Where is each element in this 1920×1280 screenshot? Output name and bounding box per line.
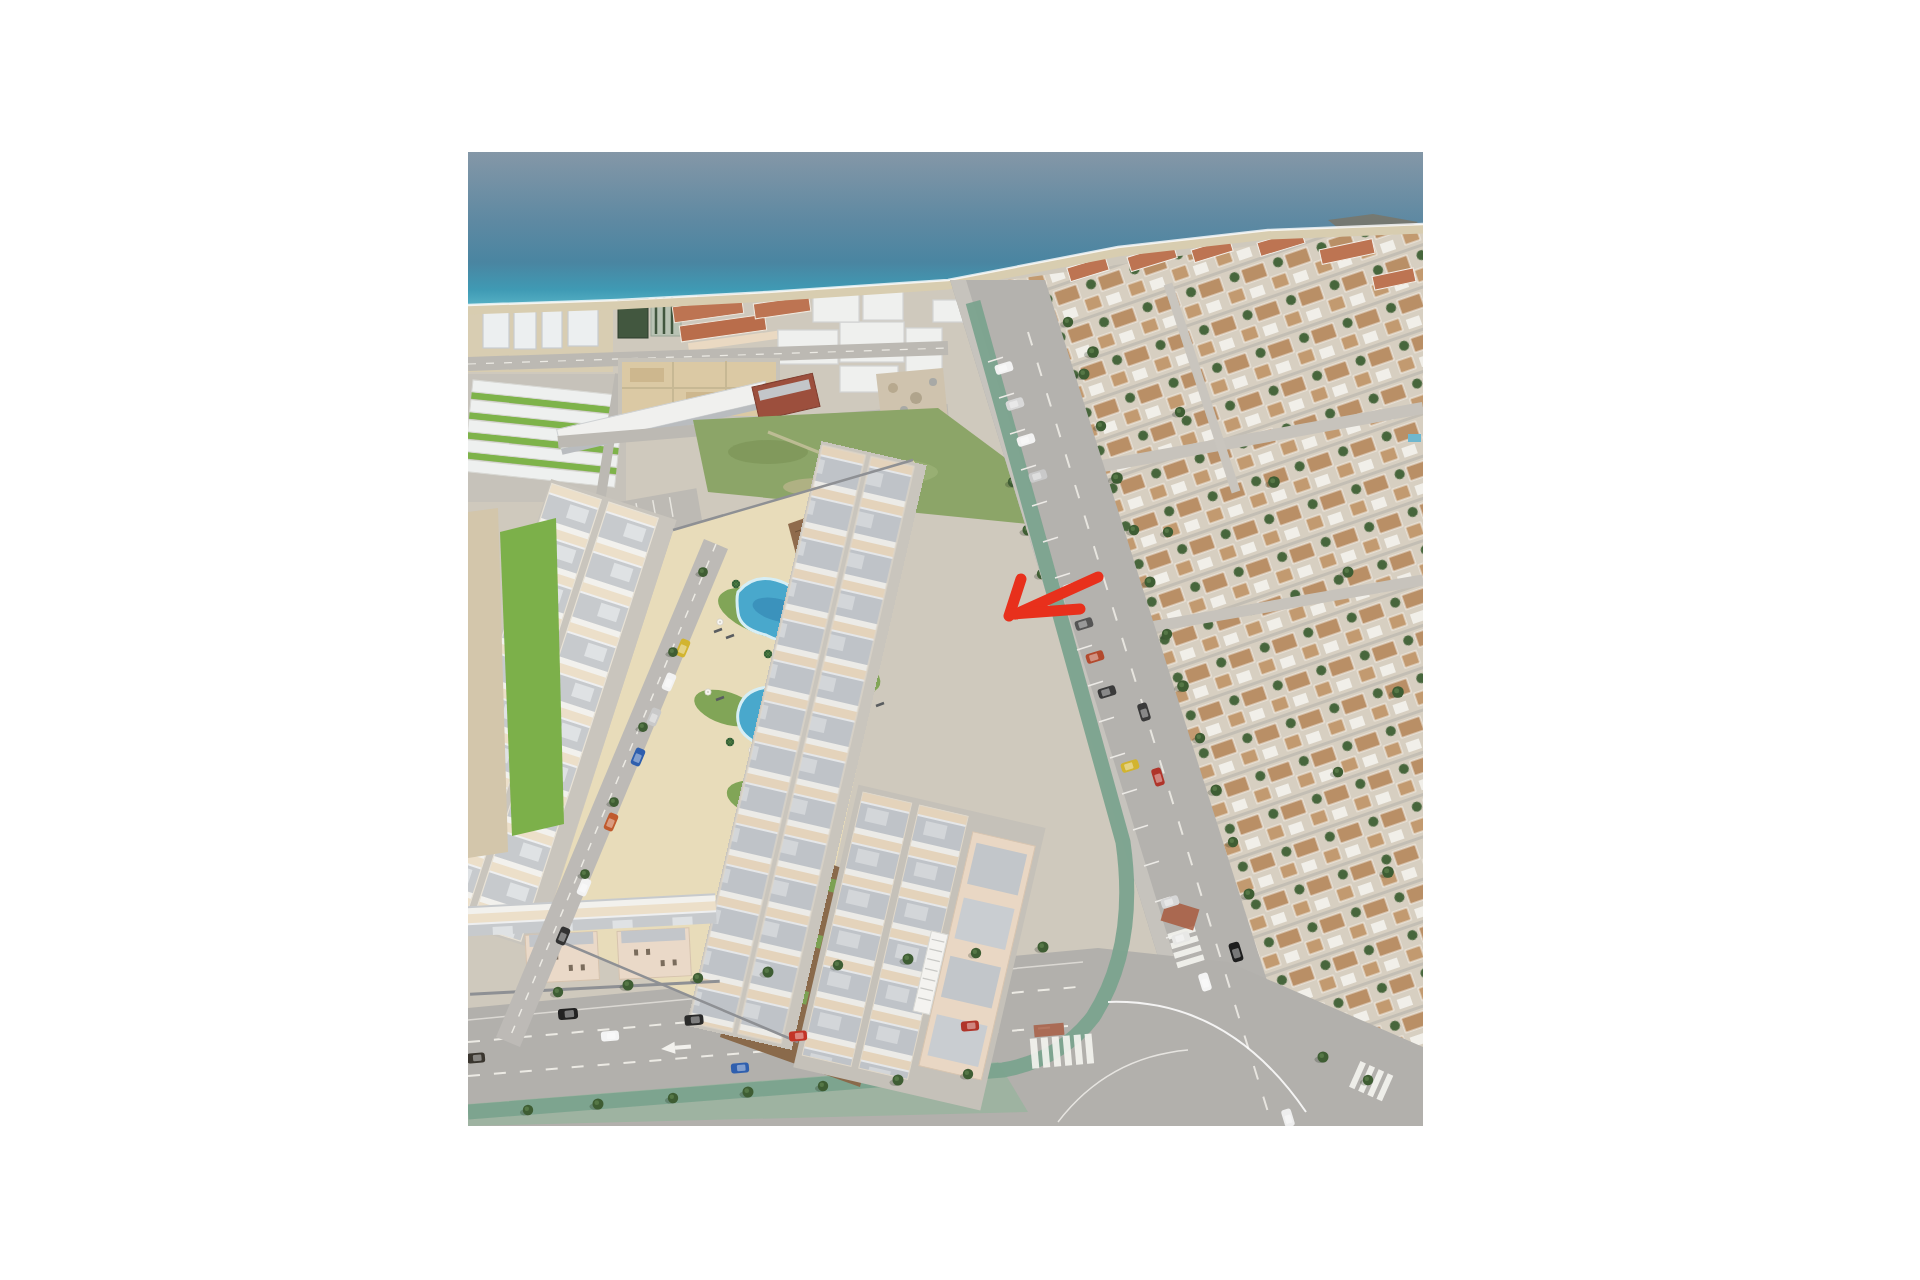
village-pool (1408, 434, 1421, 442)
aerial-photo-svg (468, 152, 1423, 1126)
page (0, 0, 1920, 1280)
arrow-barb-lower (1012, 609, 1080, 614)
aerial-photo (468, 152, 1423, 1126)
